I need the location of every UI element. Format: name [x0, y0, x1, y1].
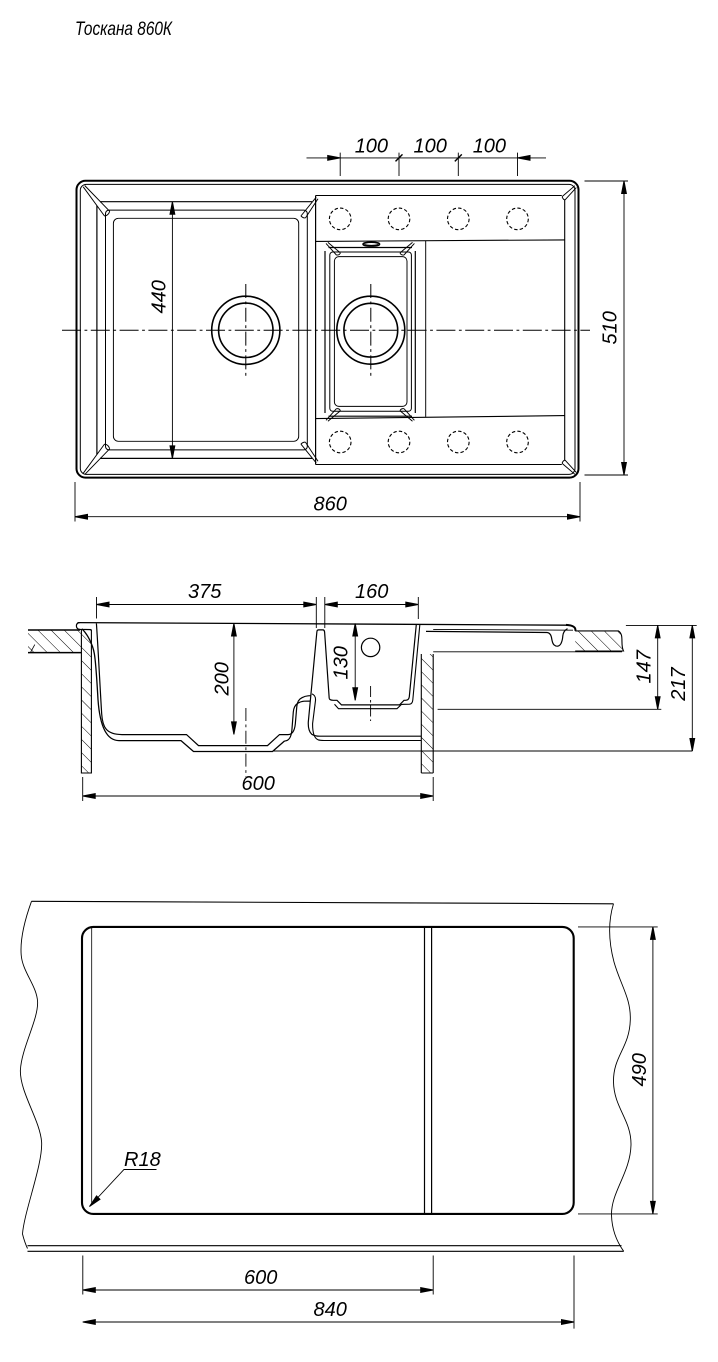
svg-text:860: 860: [314, 494, 347, 516]
svg-text:600: 600: [242, 773, 275, 795]
svg-text:Тоскана 860К: Тоскана 860К: [75, 18, 173, 40]
svg-text:100: 100: [414, 136, 447, 158]
svg-text:147: 147: [634, 649, 656, 683]
svg-text:840: 840: [314, 1299, 347, 1321]
svg-text:R18: R18: [124, 1149, 161, 1171]
svg-text:100: 100: [473, 136, 506, 158]
svg-text:200: 200: [212, 662, 234, 696]
svg-text:100: 100: [355, 136, 388, 158]
svg-text:130: 130: [331, 646, 353, 679]
svg-text:217: 217: [668, 666, 690, 701]
svg-text:600: 600: [244, 1267, 277, 1289]
svg-text:490: 490: [629, 1053, 651, 1086]
svg-text:160: 160: [355, 581, 388, 603]
svg-text:510: 510: [600, 311, 622, 344]
svg-text:440: 440: [149, 280, 171, 313]
svg-text:375: 375: [188, 581, 222, 603]
